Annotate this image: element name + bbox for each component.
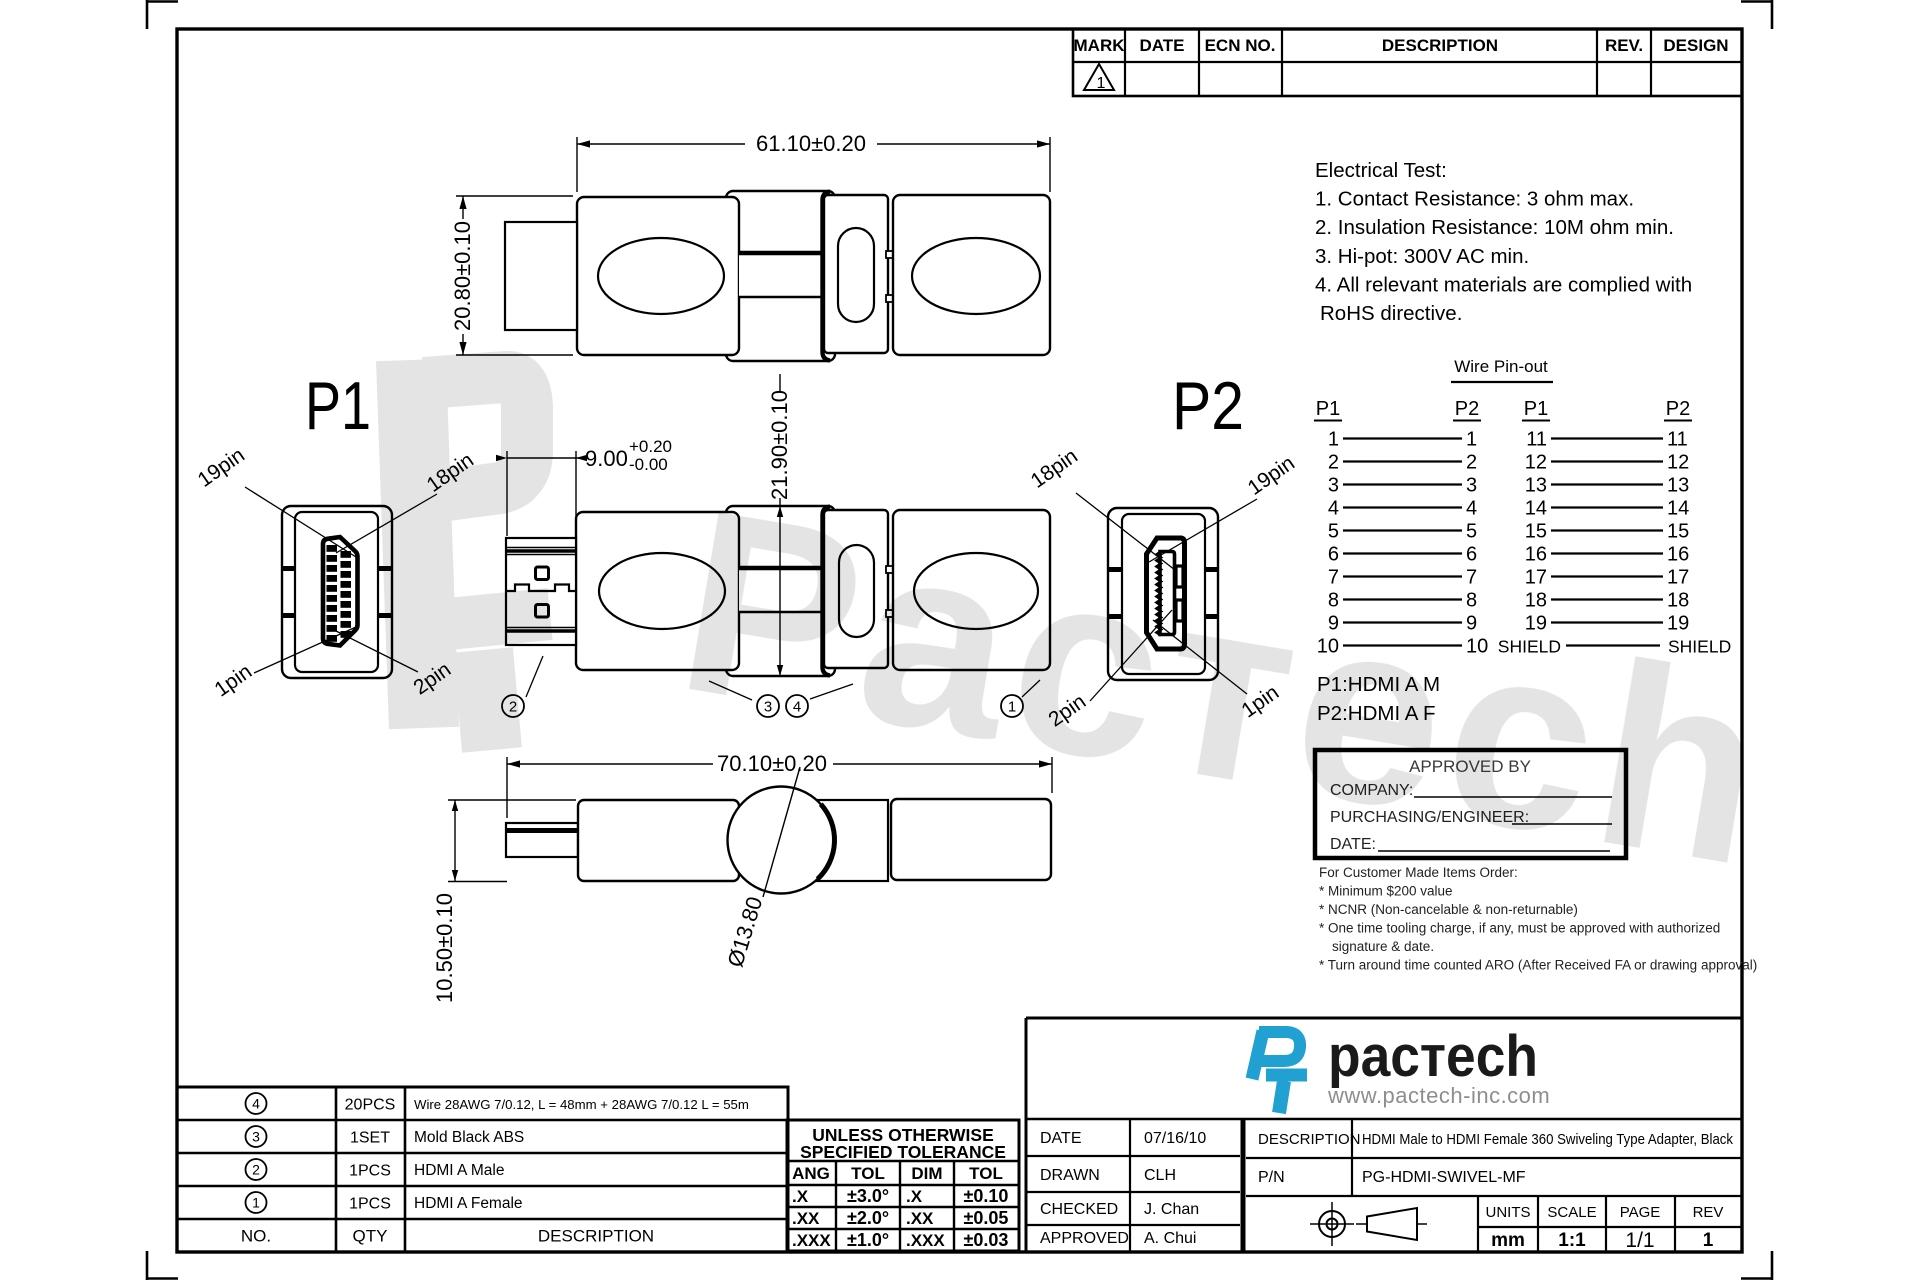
- svg-text:2: 2: [252, 1162, 260, 1178]
- svg-text:TOL: TOL: [851, 1164, 885, 1183]
- svg-text:A. Chui: A. Chui: [1144, 1230, 1196, 1247]
- svg-text:13: 13: [1525, 475, 1547, 497]
- svg-text:1: 1: [1328, 429, 1339, 451]
- svg-text:07/16/10: 07/16/10: [1144, 1130, 1206, 1147]
- svg-text:1:1: 1:1: [1558, 1230, 1586, 1251]
- svg-text:.XX: .XX: [792, 1209, 820, 1228]
- svg-text:17: 17: [1667, 567, 1689, 589]
- svg-text:20PCS: 20PCS: [345, 1097, 396, 1114]
- svg-text:DESCRIPTION: DESCRIPTION: [538, 1227, 654, 1246]
- svg-text:TOL: TOL: [969, 1164, 1003, 1183]
- svg-text:SPECIFIED TOLERANCE: SPECIFIED TOLERANCE: [800, 1142, 1006, 1162]
- svg-text:6: 6: [1466, 544, 1477, 566]
- svg-text:HDMI A Female: HDMI A Female: [414, 1195, 523, 1212]
- svg-text:1SET: 1SET: [350, 1130, 390, 1147]
- svg-text:* NCNR (Non-cancelable & non-r: * NCNR (Non-cancelable & non-returnable): [1319, 902, 1578, 917]
- svg-text:Mold Black ABS: Mold Black ABS: [414, 1129, 524, 1146]
- svg-text:1: 1: [1703, 1230, 1714, 1251]
- svg-text:±3.0°: ±3.0°: [847, 1186, 889, 1206]
- svg-text:Wire 28AWG 7/0.12, L = 48mm +: Wire 28AWG 7/0.12, L = 48mm + 28AWG 7/0.…: [414, 1097, 749, 1112]
- svg-text:3: 3: [1328, 475, 1339, 497]
- svg-text:16: 16: [1525, 544, 1547, 566]
- svg-text:4: 4: [1466, 498, 1477, 520]
- svg-text:61.10±0.20: 61.10±0.20: [756, 131, 866, 156]
- svg-text:APPROVED: APPROVED: [1040, 1230, 1129, 1247]
- svg-text:CHECKED: CHECKED: [1040, 1201, 1118, 1218]
- svg-text:3: 3: [1466, 475, 1477, 497]
- svg-text:www.pactech-inc.com: www.pactech-inc.com: [1327, 1083, 1550, 1108]
- svg-text:2. Insulation Resistance: 10M: 2. Insulation Resistance: 10M ohm min.: [1315, 216, 1674, 239]
- svg-text:P2: P2: [1666, 398, 1690, 420]
- svg-text:11: 11: [1526, 429, 1547, 451]
- svg-text:P1: P1: [1316, 398, 1340, 420]
- svg-text:P1: P1: [1524, 398, 1548, 420]
- svg-text:DESCRIPTION: DESCRIPTION: [1258, 1131, 1361, 1148]
- svg-text:P/N: P/N: [1258, 1169, 1285, 1186]
- svg-text:SCALE: SCALE: [1547, 1204, 1596, 1221]
- svg-text:15: 15: [1525, 521, 1547, 543]
- svg-text:REV: REV: [1693, 1204, 1724, 1221]
- svg-text:mm: mm: [1491, 1230, 1525, 1251]
- svg-text:CLH: CLH: [1144, 1167, 1176, 1184]
- svg-text:±1.0°: ±1.0°: [847, 1230, 889, 1250]
- svg-text:DATE: DATE: [1040, 1130, 1081, 1147]
- svg-text:UNITS: UNITS: [1486, 1204, 1531, 1221]
- svg-text:PAGE: PAGE: [1620, 1204, 1661, 1221]
- svg-text:±0.05: ±0.05: [964, 1208, 1009, 1228]
- svg-text:Electrical Test:: Electrical Test:: [1315, 159, 1447, 182]
- svg-text:1: 1: [252, 1195, 260, 1211]
- svg-text:* One time tooling charge, if: * One time tooling charge, if any, must …: [1319, 921, 1720, 936]
- svg-text:REV.: REV.: [1605, 36, 1643, 55]
- svg-text:pacтech: pacтech: [1328, 1024, 1538, 1089]
- svg-text:QTY: QTY: [353, 1227, 388, 1246]
- svg-text:1/1: 1/1: [1625, 1229, 1654, 1252]
- svg-text:DIM: DIM: [911, 1164, 942, 1183]
- svg-text:+0.20: +0.20: [629, 437, 672, 456]
- svg-text:1: 1: [1466, 429, 1477, 451]
- svg-text:signature & date.: signature & date.: [1332, 939, 1434, 954]
- svg-text:14: 14: [1525, 498, 1547, 520]
- svg-text:DRAWN: DRAWN: [1040, 1167, 1100, 1184]
- svg-text:-0.00: -0.00: [629, 455, 668, 474]
- svg-text:14: 14: [1667, 498, 1689, 520]
- svg-text:.XXX: .XXX: [792, 1231, 831, 1250]
- svg-text:17: 17: [1525, 567, 1547, 589]
- svg-text:Wire Pin-out: Wire Pin-out: [1454, 357, 1548, 376]
- svg-text:10.50±0.10: 10.50±0.10: [432, 893, 457, 1003]
- svg-text:3: 3: [252, 1129, 260, 1145]
- svg-text:11: 11: [1667, 429, 1688, 451]
- svg-text:DESIGN: DESIGN: [1663, 36, 1728, 55]
- svg-text:±2.0°: ±2.0°: [847, 1208, 889, 1228]
- svg-text:.XXX: .XXX: [906, 1231, 945, 1250]
- svg-text:9.00: 9.00: [585, 446, 628, 471]
- svg-text:2: 2: [1328, 452, 1339, 474]
- svg-text:20.80±0.10: 20.80±0.10: [450, 221, 475, 331]
- svg-text:18: 18: [1667, 590, 1689, 612]
- svg-text:16: 16: [1667, 544, 1689, 566]
- svg-text:1: 1: [1097, 75, 1106, 92]
- svg-text:* Minimum $200 value: * Minimum $200 value: [1319, 884, 1453, 899]
- svg-text:3. Hi-pot: 300V AC min.: 3. Hi-pot: 300V AC min.: [1315, 245, 1529, 268]
- svg-text:NO.: NO.: [241, 1227, 271, 1246]
- svg-text:HDMI A Male: HDMI A Male: [414, 1162, 504, 1179]
- svg-text:DESCRIPTION: DESCRIPTION: [1382, 36, 1498, 55]
- svg-text:±0.03: ±0.03: [964, 1230, 1009, 1250]
- svg-text:4: 4: [1328, 498, 1339, 520]
- svg-text:.X: .X: [906, 1187, 923, 1206]
- svg-text:4: 4: [252, 1096, 260, 1112]
- svg-text:.X: .X: [792, 1187, 809, 1206]
- svg-text:J. Chan: J. Chan: [1144, 1201, 1199, 1218]
- svg-text:MARK: MARK: [1074, 36, 1126, 55]
- svg-text:5: 5: [1328, 521, 1339, 543]
- svg-text:1. Contact Resistance: 3 ohm m: 1. Contact Resistance: 3 ohm max.: [1315, 188, 1634, 211]
- svg-text:1PCS: 1PCS: [349, 1163, 391, 1180]
- svg-text:DATE: DATE: [1139, 36, 1184, 55]
- svg-text:PG-HDMI-SWIVEL-MF: PG-HDMI-SWIVEL-MF: [1362, 1169, 1526, 1186]
- svg-text:12: 12: [1525, 452, 1547, 474]
- svg-text:HDMI Male to HDMI Female 360 S: HDMI Male to HDMI Female 360 Swiveling T…: [1362, 1131, 1733, 1148]
- svg-text:13: 13: [1667, 475, 1689, 497]
- svg-text:P2: P2: [1172, 368, 1244, 444]
- svg-text:5: 5: [1466, 521, 1477, 543]
- svg-text:.XX: .XX: [906, 1209, 934, 1228]
- svg-text:12: 12: [1667, 452, 1689, 474]
- svg-text:RoHS directive.: RoHS directive.: [1320, 302, 1462, 325]
- svg-text:1PCS: 1PCS: [349, 1196, 391, 1213]
- svg-text:2: 2: [1466, 452, 1477, 474]
- svg-text:4. All relevant materials are: 4. All relevant materials are complied w…: [1315, 273, 1692, 296]
- svg-text:P1: P1: [305, 368, 371, 444]
- svg-text:ANG: ANG: [792, 1164, 830, 1183]
- svg-text:ECN NO.: ECN NO.: [1205, 36, 1276, 55]
- svg-text:P2: P2: [1455, 398, 1479, 420]
- svg-text:* Turn around time counted ARO: * Turn around time counted ARO (After Re…: [1319, 958, 1757, 973]
- svg-text:±0.10: ±0.10: [964, 1186, 1009, 1206]
- svg-text:15: 15: [1667, 521, 1689, 543]
